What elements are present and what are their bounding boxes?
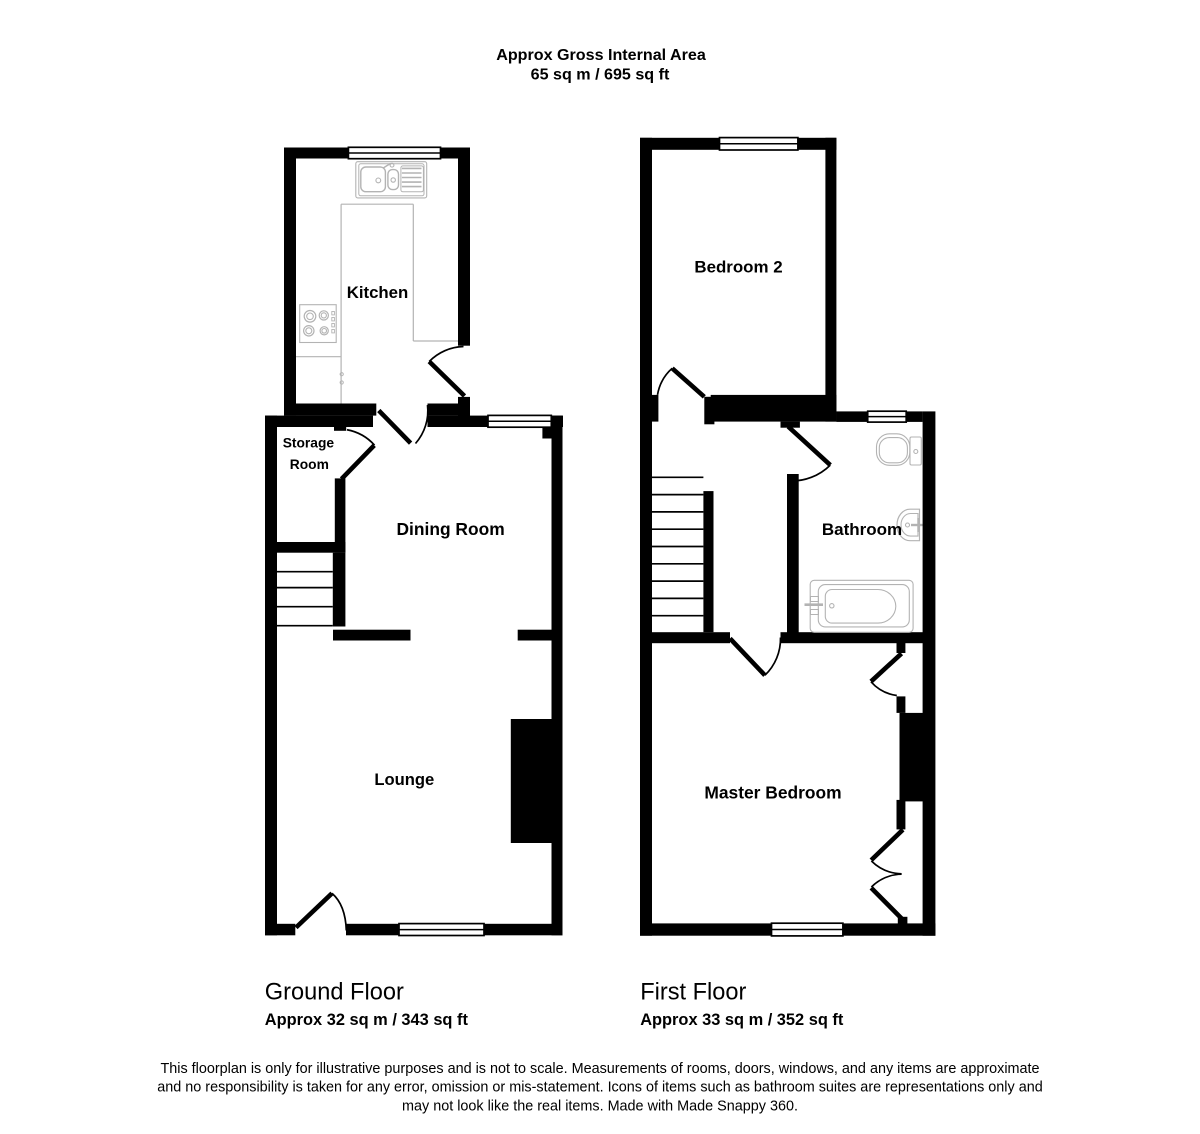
svg-text:Storage: Storage [283,436,335,451]
svg-text:Bathroom: Bathroom [822,520,902,539]
svg-text:First Floor: First Floor [640,980,746,1006]
svg-text:Approx Gross Internal Area: Approx Gross Internal Area [496,46,707,64]
svg-text:Bedroom 2: Bedroom 2 [694,258,782,277]
svg-text:This floorplan is only for ill: This floorplan is only for illustrative … [160,1061,1039,1077]
svg-text:65 sq m / 695 sq ft: 65 sq m / 695 sq ft [531,65,670,83]
svg-text:Room: Room [290,457,329,472]
svg-text:Lounge: Lounge [374,770,434,789]
svg-text:and no responsibility is taken: and no responsibility is taken for any e… [157,1080,1042,1096]
svg-text:may not look like the real ite: may not look like the real items. Made w… [402,1098,798,1114]
svg-text:Dining Room: Dining Room [396,519,504,539]
svg-text:Approx 32 sq m / 343 sq ft: Approx 32 sq m / 343 sq ft [265,1011,469,1029]
svg-text:Kitchen: Kitchen [347,283,409,302]
svg-text:Approx 33 sq m / 352 sq ft: Approx 33 sq m / 352 sq ft [640,1011,844,1029]
svg-text:Master Bedroom: Master Bedroom [704,783,841,803]
svg-text:Ground Floor: Ground Floor [265,980,404,1006]
